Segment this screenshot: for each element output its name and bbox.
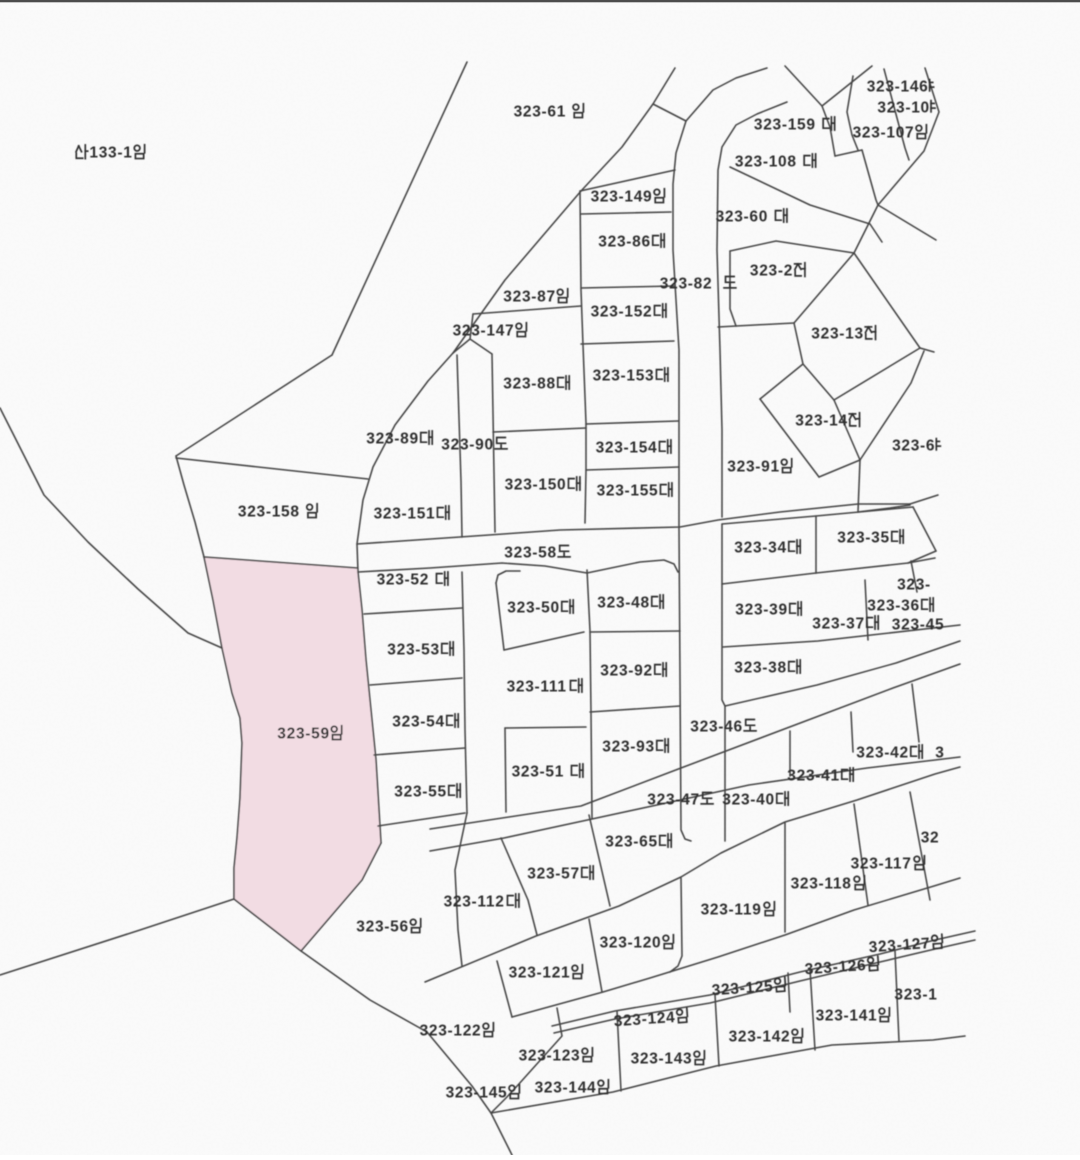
svg-text:323-153: 323-153 bbox=[593, 368, 655, 385]
svg-text:323-147: 323-147 bbox=[453, 323, 515, 340]
svg-text:323-123: 323-123 bbox=[519, 1048, 581, 1065]
svg-text:323-111: 323-111 bbox=[507, 679, 567, 696]
svg-text:323-58: 323-58 bbox=[504, 545, 556, 562]
svg-text:323-1: 323-1 bbox=[894, 987, 937, 1004]
svg-text:323-93: 323-93 bbox=[602, 739, 654, 756]
svg-text:323-117: 323-117 bbox=[851, 856, 912, 873]
svg-text:323-144: 323-144 bbox=[535, 1080, 597, 1097]
svg-text:323-146: 323-146 bbox=[867, 79, 929, 96]
svg-text:323-36: 323-36 bbox=[867, 598, 919, 615]
svg-text:323-53: 323-53 bbox=[387, 642, 439, 659]
svg-text:323-143: 323-143 bbox=[631, 1051, 693, 1068]
svg-text:323-120: 323-120 bbox=[600, 935, 662, 952]
svg-text:323-: 323- bbox=[897, 577, 931, 594]
svg-text:323-158: 323-158 bbox=[238, 504, 300, 521]
svg-text:323-151: 323-151 bbox=[374, 506, 436, 523]
svg-text:323-2: 323-2 bbox=[750, 263, 793, 280]
svg-text:323-34: 323-34 bbox=[734, 540, 786, 557]
svg-text:323-145: 323-145 bbox=[446, 1085, 508, 1102]
svg-text:323-38: 323-38 bbox=[734, 660, 786, 677]
svg-text:323-50: 323-50 bbox=[507, 600, 559, 617]
svg-text:323-112: 323-112 bbox=[444, 894, 505, 911]
svg-text:323-55: 323-55 bbox=[394, 784, 446, 801]
svg-text:133-1: 133-1 bbox=[89, 145, 132, 162]
svg-text:323-86: 323-86 bbox=[598, 234, 650, 251]
svg-text:323-39: 323-39 bbox=[735, 602, 787, 619]
svg-text:323-65: 323-65 bbox=[605, 834, 657, 851]
svg-text:32: 32 bbox=[921, 830, 940, 847]
svg-text:323-52: 323-52 bbox=[377, 572, 429, 589]
svg-text:323-122: 323-122 bbox=[420, 1023, 482, 1040]
svg-text:323-82: 323-82 bbox=[660, 276, 712, 293]
svg-text:323-121: 323-121 bbox=[509, 965, 571, 982]
svg-text:323-54: 323-54 bbox=[392, 714, 444, 731]
svg-text:323-35: 323-35 bbox=[837, 530, 889, 547]
svg-text:323-57: 323-57 bbox=[527, 866, 579, 883]
svg-text:323-142: 323-142 bbox=[729, 1029, 791, 1046]
svg-text:323-61: 323-61 bbox=[514, 104, 566, 121]
svg-text:323-10: 323-10 bbox=[877, 100, 929, 117]
svg-text:323-155: 323-155 bbox=[597, 483, 659, 500]
svg-text:323-91: 323-91 bbox=[727, 459, 779, 476]
svg-text:323-56: 323-56 bbox=[356, 919, 408, 936]
svg-text:323-154: 323-154 bbox=[596, 440, 658, 457]
svg-text:323-107: 323-107 bbox=[853, 125, 915, 142]
svg-text:323-152: 323-152 bbox=[591, 304, 653, 321]
svg-text:323-13: 323-13 bbox=[811, 326, 863, 343]
svg-text:323-46: 323-46 bbox=[690, 719, 742, 736]
svg-text:323-48: 323-48 bbox=[597, 595, 649, 612]
svg-text:323-59: 323-59 bbox=[277, 726, 329, 743]
svg-text:323-45: 323-45 bbox=[892, 617, 944, 634]
svg-text:323-40: 323-40 bbox=[722, 792, 774, 809]
svg-text:323-60: 323-60 bbox=[716, 209, 768, 226]
svg-text:323-88: 323-88 bbox=[503, 376, 555, 393]
svg-text:323-118: 323-118 bbox=[791, 876, 852, 893]
svg-text:323-42: 323-42 bbox=[856, 745, 908, 762]
svg-text:323-41: 323-41 bbox=[787, 768, 839, 785]
svg-text:323-141: 323-141 bbox=[816, 1008, 878, 1025]
svg-text:323-89: 323-89 bbox=[366, 431, 418, 448]
svg-text:323-51: 323-51 bbox=[512, 764, 564, 781]
svg-text:323-47: 323-47 bbox=[647, 792, 699, 809]
svg-text:3: 3 bbox=[935, 745, 944, 762]
svg-text:323-37: 323-37 bbox=[812, 616, 864, 633]
svg-text:323-87: 323-87 bbox=[503, 289, 555, 306]
svg-text:323-14: 323-14 bbox=[795, 413, 847, 430]
svg-text:323-149: 323-149 bbox=[591, 189, 653, 206]
svg-text:323-159: 323-159 bbox=[754, 117, 816, 134]
svg-text:323-150: 323-150 bbox=[505, 477, 567, 494]
svg-text:323-119: 323-119 bbox=[701, 902, 762, 919]
svg-text:323-92: 323-92 bbox=[600, 663, 652, 680]
svg-text:323-108: 323-108 bbox=[735, 154, 797, 171]
svg-text:323-90: 323-90 bbox=[441, 437, 493, 454]
svg-text:323-6: 323-6 bbox=[892, 438, 935, 455]
